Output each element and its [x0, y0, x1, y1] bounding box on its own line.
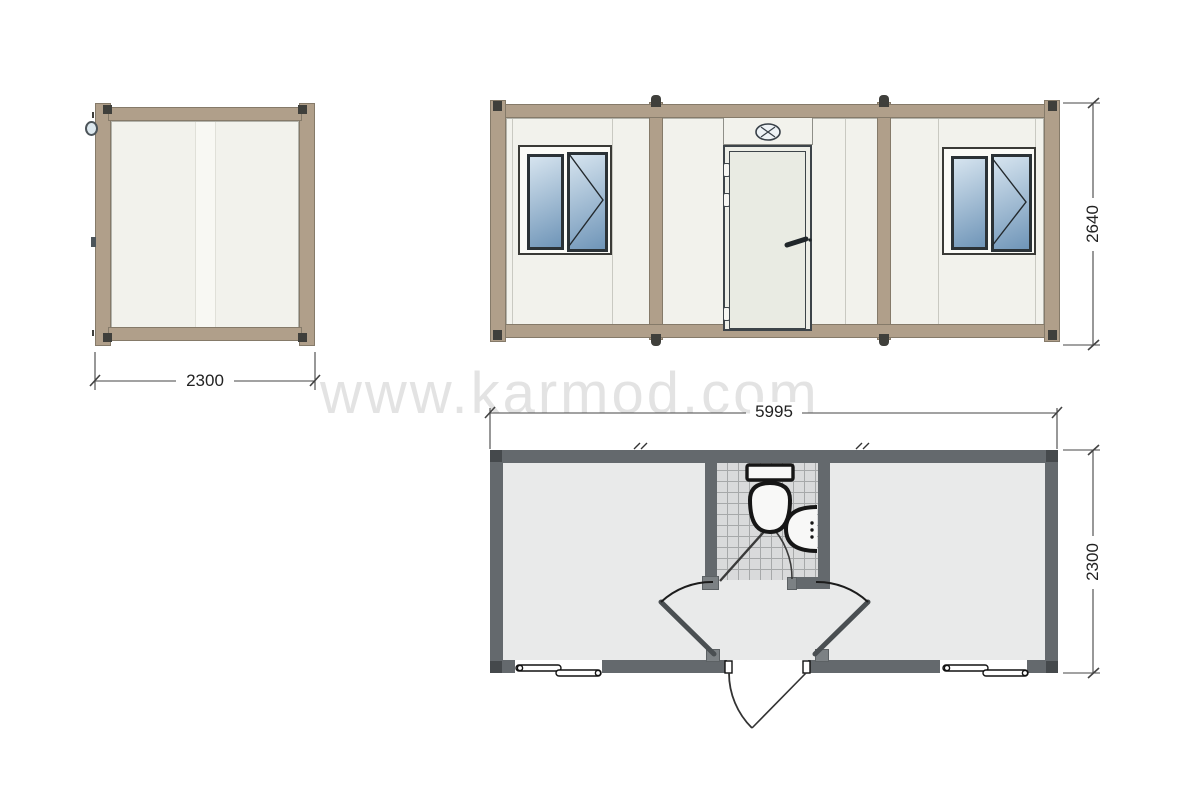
- corner-fitting: [298, 333, 307, 342]
- door-hinge-icon: [723, 307, 730, 321]
- window-pane-fixed: [527, 154, 564, 250]
- side-bottom-rail: [108, 327, 302, 341]
- panel-seam: [845, 119, 846, 325]
- dim-label-side-width: 2300: [181, 371, 229, 391]
- front-corner-post-left: [490, 100, 506, 342]
- post-connector-icon: [651, 95, 661, 107]
- room-door-hinge-post: [706, 649, 720, 662]
- entrance-door-swing-arc: [729, 673, 752, 728]
- panel-seam: [512, 119, 513, 325]
- plan-corner-fitting: [490, 450, 502, 462]
- plan-wall-left: [490, 450, 503, 673]
- side-corner-post-right: [299, 103, 315, 346]
- corner-fitting: [298, 105, 307, 114]
- plan-corner-fitting: [490, 661, 502, 673]
- plan-wall-top: [490, 450, 1058, 463]
- window-pane-opening: [567, 152, 608, 252]
- bathroom-door-post: [787, 577, 797, 590]
- window-left: [518, 145, 612, 255]
- front-corner-post-right: [1044, 100, 1060, 342]
- plan-corner-fitting: [1046, 661, 1058, 673]
- watermark-text: www.karmod.com: [320, 360, 920, 427]
- dim-label-front-height: 2640: [1083, 200, 1103, 248]
- post-connector-icon: [879, 95, 889, 107]
- front-elevation-view: [490, 100, 1060, 342]
- post-connector-icon: [651, 334, 661, 346]
- bathroom-door-post: [702, 576, 719, 590]
- mid-post: [649, 102, 663, 340]
- latch-icon: [91, 237, 96, 247]
- corner-fitting: [1048, 101, 1057, 111]
- door-leaf: [729, 151, 806, 329]
- corner-fitting: [103, 105, 112, 114]
- container-house-drawing: www.karmod.com: [0, 0, 1200, 800]
- window-right: [942, 147, 1036, 255]
- side-panel-seam: [195, 122, 216, 327]
- lifting-hook-icon: [85, 121, 98, 136]
- entrance-door-elevation: [723, 145, 812, 331]
- bathroom-tile-floor: [717, 463, 818, 580]
- post-connector-icon: [879, 334, 889, 346]
- panel-seam: [612, 119, 613, 325]
- wall-joint-ticks: [634, 443, 869, 449]
- entrance-door-leaf: [752, 673, 806, 728]
- side-top-rail: [108, 107, 302, 121]
- mid-post: [877, 102, 891, 340]
- dim-label-front-width: 5995: [750, 402, 798, 422]
- side-elevation-view: [95, 103, 315, 346]
- panel-seam: [938, 119, 939, 325]
- bathroom-wall-left: [705, 463, 717, 581]
- window-pane-opening: [991, 154, 1032, 252]
- corner-fitting: [103, 333, 112, 342]
- window-pane-fixed: [951, 156, 988, 250]
- door-transom-panel: [723, 118, 813, 145]
- plan-corner-fitting: [1046, 450, 1058, 462]
- side-corner-post-left: [95, 103, 111, 346]
- door-hinge-icon: [723, 193, 730, 207]
- corner-fitting: [1048, 330, 1057, 340]
- dim-label-plan-depth: 2300: [1083, 538, 1103, 586]
- floor-plan-view: [490, 450, 1058, 673]
- room-door-hinge-post: [815, 649, 829, 662]
- corner-fitting: [493, 101, 502, 111]
- front-top-rail: [504, 104, 1046, 118]
- corner-fitting: [493, 330, 502, 340]
- door-hinge-icon: [723, 163, 730, 177]
- bathroom-wall-right: [818, 463, 830, 581]
- plan-wall-right: [1045, 450, 1058, 673]
